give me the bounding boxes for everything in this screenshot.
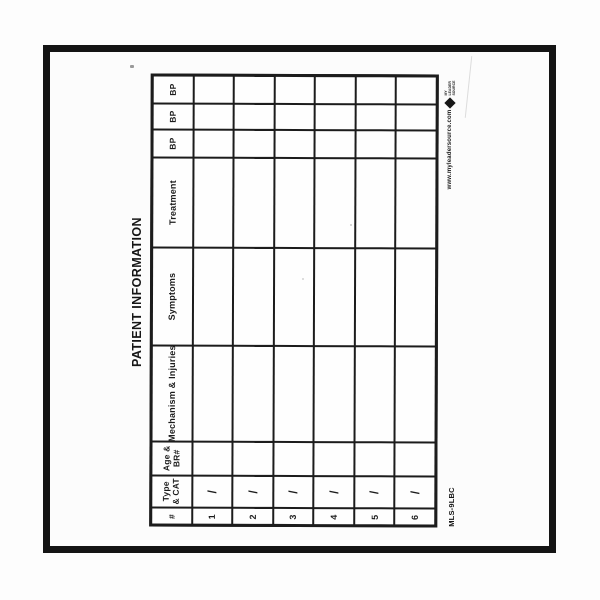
empty-cell bbox=[316, 77, 355, 103]
empty-cell bbox=[235, 105, 274, 129]
empty-cell bbox=[397, 105, 436, 129]
type-cat-cell: / bbox=[396, 477, 435, 507]
header-cell-bp1: BP bbox=[154, 131, 193, 157]
empty-cell bbox=[234, 249, 273, 345]
brand-footer: www.myleadersource.com MY LEADER SOURCE bbox=[441, 87, 459, 183]
photo-border-frame: PATIENT INFORMATION BP BP BP bbox=[43, 45, 556, 553]
header-cell-bp3: BP bbox=[154, 77, 193, 103]
empty-cell bbox=[274, 347, 313, 441]
empty-cell bbox=[275, 131, 314, 157]
empty-cell bbox=[397, 159, 436, 247]
empty-cell bbox=[274, 443, 313, 475]
header-cell-bp2: BP bbox=[154, 105, 193, 129]
empty-cell bbox=[275, 77, 314, 103]
empty-cell bbox=[315, 159, 354, 247]
empty-cell bbox=[356, 105, 395, 129]
scanned-form-photo: PATIENT INFORMATION BP BP BP bbox=[0, 0, 600, 600]
empty-cell bbox=[355, 347, 394, 441]
empty-cell bbox=[194, 77, 233, 103]
empty-cell bbox=[234, 347, 273, 441]
page-title: PATIENT INFORMATION bbox=[130, 212, 144, 372]
empty-cell bbox=[316, 131, 355, 157]
empty-cell bbox=[234, 443, 273, 475]
header-cell-number: # bbox=[152, 509, 191, 524]
empty-cell bbox=[275, 159, 314, 247]
empty-cell bbox=[275, 105, 314, 129]
empty-cell bbox=[315, 347, 354, 441]
header-cell-mechanism: Mechanism & Injuries bbox=[153, 347, 192, 441]
empty-cell bbox=[315, 249, 354, 345]
website-url: www.myleadersource.com bbox=[447, 110, 453, 190]
empty-cell bbox=[193, 443, 232, 475]
empty-cell bbox=[355, 443, 394, 475]
empty-cell bbox=[397, 77, 436, 103]
row-number-cell: 5 bbox=[355, 509, 394, 524]
empty-cell bbox=[357, 77, 396, 103]
header-cell-type-cat: Type& CAT bbox=[152, 477, 191, 507]
empty-cell bbox=[396, 249, 435, 345]
row-number-cell: 1 bbox=[193, 509, 232, 524]
empty-cell bbox=[396, 443, 435, 475]
type-cat-cell: / bbox=[315, 477, 354, 507]
header-cell-symptoms: Symptoms bbox=[153, 249, 192, 345]
header-cell-treatment: Treatment bbox=[153, 159, 192, 247]
empty-cell bbox=[235, 131, 274, 157]
empty-cell bbox=[356, 131, 395, 157]
empty-cell bbox=[356, 249, 395, 345]
form-code: MLS-9LBC bbox=[447, 483, 457, 531]
row-number-cell: 3 bbox=[274, 509, 313, 524]
empty-cell bbox=[315, 443, 354, 475]
type-cat-cell: / bbox=[274, 477, 313, 507]
empty-cell bbox=[194, 159, 233, 247]
logo-wordmark: MY LEADER SOURCE bbox=[444, 81, 456, 96]
scan-speck bbox=[302, 278, 304, 280]
empty-cell bbox=[193, 249, 232, 345]
row-number-cell: 2 bbox=[233, 509, 272, 524]
empty-cell bbox=[316, 105, 355, 129]
empty-cell bbox=[234, 159, 273, 247]
form-page: PATIENT INFORMATION BP BP BP bbox=[50, 52, 549, 546]
empty-cell bbox=[356, 159, 395, 247]
header-cell-age-br: Age &BR# bbox=[152, 443, 191, 475]
scan-speck bbox=[130, 65, 134, 68]
empty-cell bbox=[193, 347, 232, 441]
row-number-cell: 4 bbox=[315, 509, 354, 524]
empty-cell bbox=[194, 131, 233, 157]
patient-information-table: BP BP BP bbox=[149, 73, 439, 527]
row-number-cell: 6 bbox=[396, 509, 435, 524]
empty-cell bbox=[396, 347, 435, 441]
paper-crease bbox=[465, 56, 472, 118]
empty-cell bbox=[194, 105, 233, 129]
empty-cell bbox=[397, 131, 436, 157]
scan-speck bbox=[350, 224, 352, 226]
empty-cell bbox=[235, 77, 274, 103]
empty-cell bbox=[275, 249, 314, 345]
type-cat-cell: / bbox=[355, 477, 394, 507]
type-cat-cell: / bbox=[193, 477, 232, 507]
diamond-icon bbox=[444, 97, 455, 108]
type-cat-cell: / bbox=[233, 477, 272, 507]
